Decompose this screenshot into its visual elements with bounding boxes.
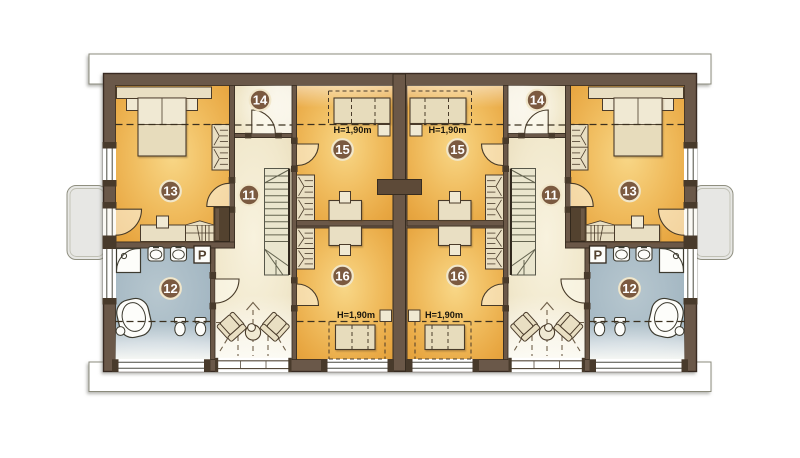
svg-text:P: P	[198, 248, 207, 263]
svg-text:15: 15	[450, 142, 464, 157]
svg-text:16: 16	[335, 269, 349, 284]
svg-text:13: 13	[622, 184, 636, 199]
svg-text:14: 14	[530, 93, 545, 108]
svg-text:16: 16	[450, 269, 464, 284]
svg-text:12: 12	[163, 281, 177, 296]
svg-text:H=1,90m: H=1,90m	[428, 125, 466, 135]
svg-text:12: 12	[622, 281, 636, 296]
svg-text:H=1,90m: H=1,90m	[425, 310, 463, 320]
svg-text:11: 11	[242, 188, 256, 203]
svg-text:13: 13	[163, 184, 177, 199]
svg-text:11: 11	[544, 188, 558, 203]
svg-text:H=1,90m: H=1,90m	[333, 125, 371, 135]
svg-text:H=1,90m: H=1,90m	[337, 310, 375, 320]
svg-text:15: 15	[335, 142, 349, 157]
svg-text:P: P	[593, 248, 602, 263]
svg-text:14: 14	[253, 93, 268, 108]
